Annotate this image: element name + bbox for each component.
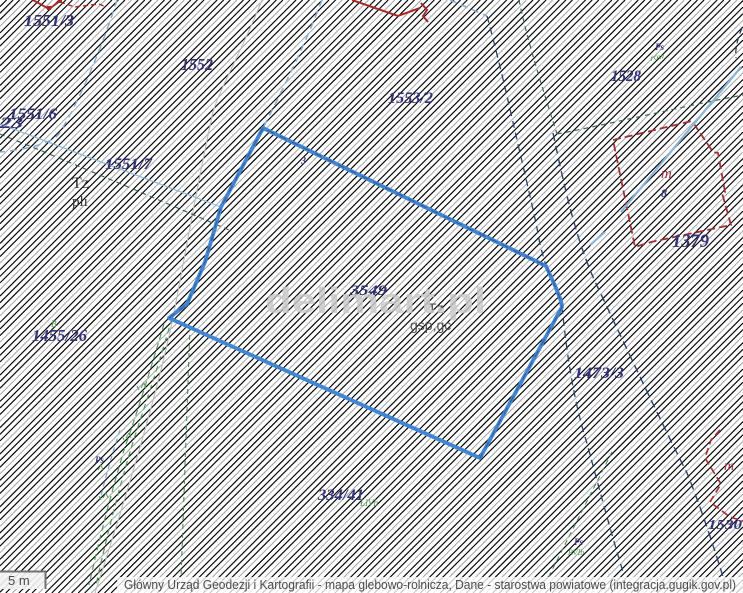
svg-text:1473/3: 1473/3 <box>574 365 624 382</box>
svg-text:1530: 1530 <box>708 518 742 533</box>
svg-text:1551/7: 1551/7 <box>105 156 153 173</box>
svg-text:1553/2: 1553/2 <box>388 90 433 107</box>
svg-text:23: 23 <box>0 115 23 132</box>
svg-text:1552: 1552 <box>181 55 213 74</box>
svg-text:8: 8 <box>661 186 667 200</box>
svg-text:m: m <box>661 166 672 182</box>
svg-text:334/41: 334/41 <box>317 487 364 504</box>
svg-text:B: B <box>51 319 57 329</box>
svg-text:Tz: Tz <box>72 175 89 192</box>
svg-text:pli: pli <box>72 194 88 210</box>
svg-text:5 m: 5 m <box>8 573 30 588</box>
svg-text:Ps: Ps <box>574 537 583 547</box>
svg-text:RVIb: RVIb <box>567 548 584 557</box>
svg-text:1528: 1528 <box>611 68 641 85</box>
svg-text:delimart.pl: delimart.pl <box>265 280 486 321</box>
svg-text:ŁIVb: ŁIVb <box>359 498 379 508</box>
svg-text:1551/3: 1551/3 <box>24 11 75 30</box>
svg-text:1379: 1379 <box>672 231 709 252</box>
svg-text:Ps: Ps <box>95 455 104 465</box>
svg-text:Główny Urząd Geodezji i Kartog: Główny Urząd Geodezji i Kartografii - ma… <box>124 578 736 592</box>
svg-text:1455/26: 1455/26 <box>32 326 87 345</box>
svg-text:m: m <box>724 459 734 474</box>
svg-text:3: 3 <box>300 156 306 167</box>
